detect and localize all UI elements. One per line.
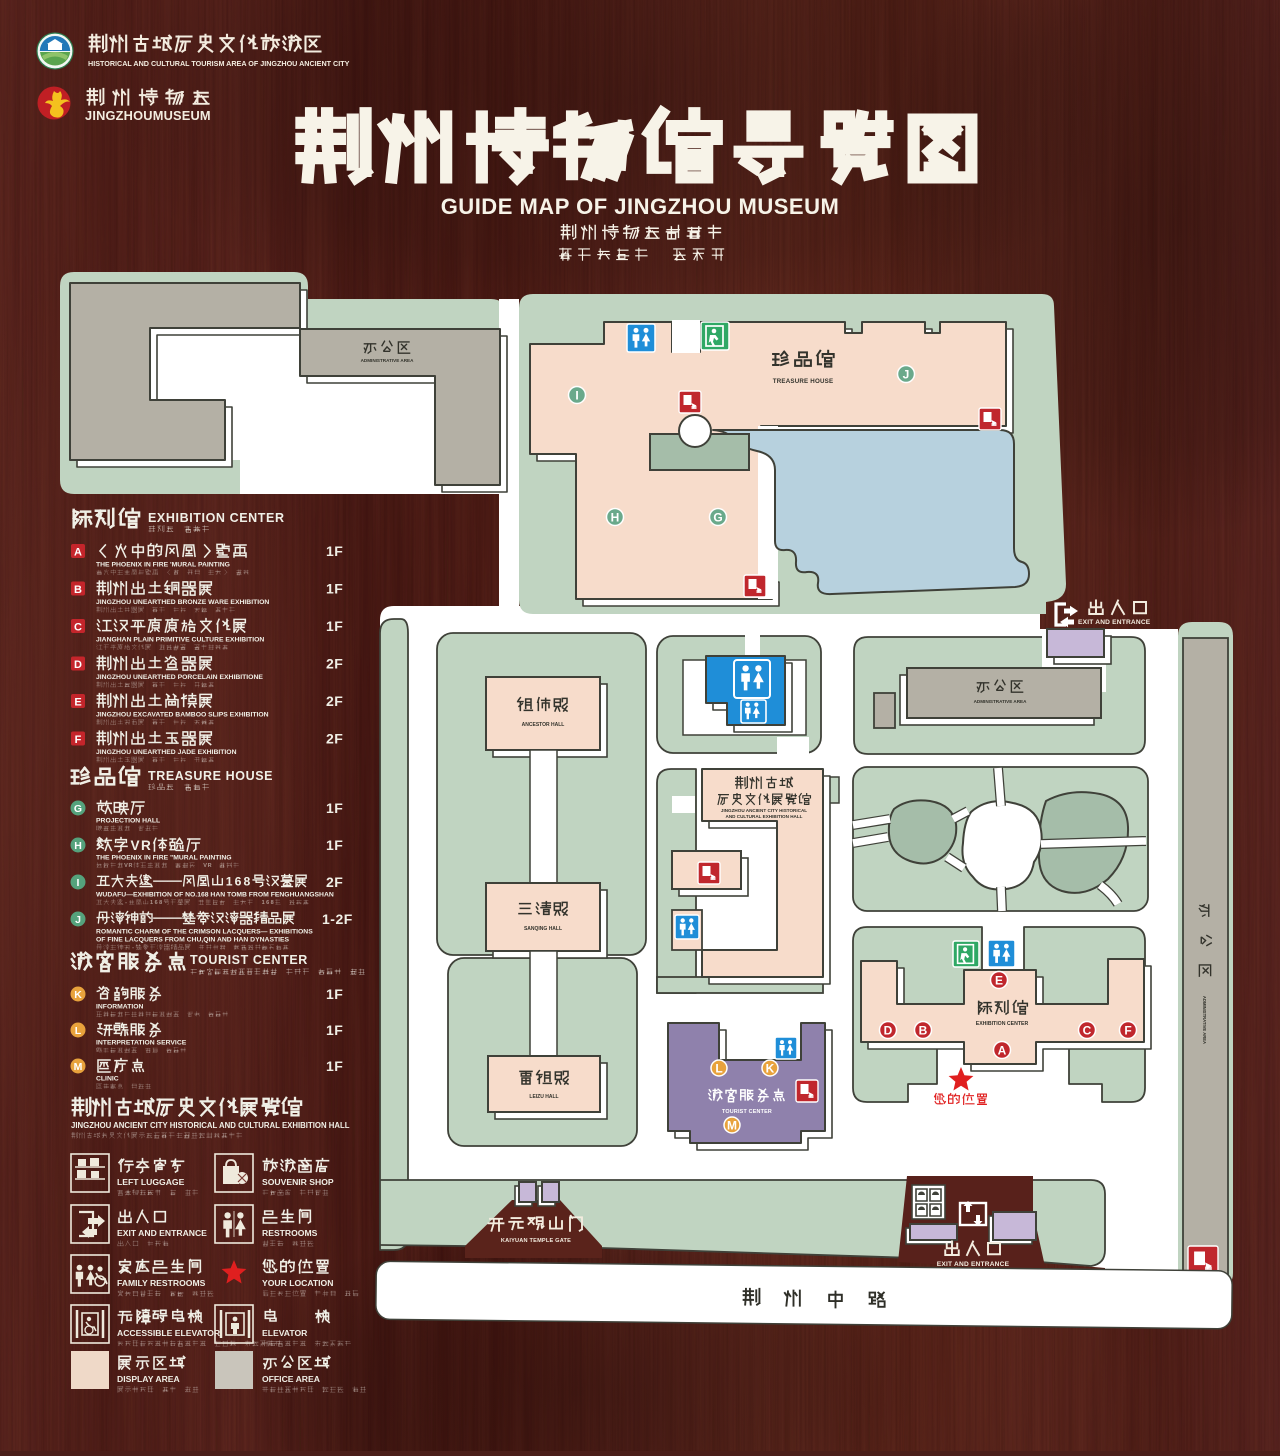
svg-text:ADMINISTRATIVE AREA: ADMINISTRATIVE AREA [974, 699, 1028, 704]
svg-text:B: B [919, 1023, 928, 1037]
svg-text:8: 8 [271, 900, 274, 906]
svg-text:TREASURE HOUSE: TREASURE HOUSE [148, 769, 273, 783]
svg-text:ROMANTIC CHARM OF THE CRIMSON: ROMANTIC CHARM OF THE CRIMSON LACQUERS— … [96, 929, 313, 936]
svg-text:JINGZHOUMUSEUM: JINGZHOUMUSEUM [85, 108, 211, 123]
svg-text:EXHIBITION CENTER: EXHIBITION CENTER [976, 1021, 1029, 1027]
svg-text:RESTROOMS: RESTROOMS [262, 1228, 318, 1238]
svg-text:R: R [129, 863, 133, 869]
svg-text:H: H [611, 510, 620, 524]
svg-text:SANQING HALL: SANQING HALL [524, 926, 562, 932]
svg-text:YOUR LOCATION: YOUR LOCATION [262, 1278, 333, 1288]
svg-text:-: - [132, 945, 134, 951]
svg-text:CLINIC: CLINIC [96, 1076, 119, 1083]
svg-text:DISPLAY AREA: DISPLAY AREA [117, 1374, 180, 1384]
svg-text:1: 1 [150, 900, 153, 906]
svg-text:1F: 1F [326, 1058, 343, 1074]
svg-text:OF FINE LACQUERS FROM CHU,QIN: OF FINE LACQUERS FROM CHU,QIN AND HAN DY… [96, 937, 290, 944]
svg-text:-: - [125, 900, 127, 906]
svg-text:J: J [903, 367, 910, 381]
svg-text:C: C [1083, 1023, 1092, 1037]
svg-text:ADMINISTRATIVE AREA: ADMINISTRATIVE AREA [361, 358, 415, 363]
svg-text:THE PHOENIX IN FIRE 'MURAL PAI: THE PHOENIX IN FIRE 'MURAL PAINTING [96, 562, 230, 569]
svg-text:J: J [75, 914, 81, 926]
svg-text:6: 6 [235, 874, 242, 888]
svg-text:6: 6 [266, 900, 269, 906]
svg-text:I: I [77, 877, 80, 889]
svg-text:JINGZHOU ANCIENT CITY HISTORIC: JINGZHOU ANCIENT CITY HISTORICAL AND CUL… [71, 1121, 350, 1130]
svg-text:2F: 2F [326, 874, 343, 890]
svg-text:EXHIBITION CENTER: EXHIBITION CENTER [148, 511, 285, 525]
svg-text:ADMINISTRATIVE AREA: ADMINISTRATIVE AREA [1202, 996, 1207, 1044]
svg-text:1F: 1F [326, 581, 343, 597]
svg-text:JINGZHOU ANCIENT CITY HISTORIC: JINGZHOU ANCIENT CITY HISTORICAL [721, 808, 807, 813]
svg-text:JINGZHOU UNEARTHED BRONZE WARE: JINGZHOU UNEARTHED BRONZE WARE EXHIBITIO… [96, 599, 269, 606]
svg-text:JINGZHOU UNEARTHED PORCELAIN E: JINGZHOU UNEARTHED PORCELAIN EXHIBITIONE [96, 674, 263, 681]
svg-text:TREASURE HOUSE: TREASURE HOUSE [773, 378, 834, 385]
svg-text:WUDAFU—EXHIBITION OF NO.168 HA: WUDAFU—EXHIBITION OF NO.168 HAN TOMB FRO… [96, 892, 334, 899]
svg-text:2F: 2F [326, 731, 343, 747]
svg-text:1-2F: 1-2F [322, 911, 353, 927]
svg-text:FAMILY RESTROOMS: FAMILY RESTROOMS [117, 1278, 206, 1288]
svg-text:F: F [75, 734, 82, 746]
svg-text:2F: 2F [326, 693, 343, 709]
svg-text:M: M [727, 1118, 737, 1132]
svg-text:ELEVATOR: ELEVATOR [262, 1328, 308, 1338]
svg-text:I: I [575, 388, 578, 402]
svg-text:SOUVENIR SHOP: SOUVENIR SHOP [262, 1177, 334, 1187]
svg-text:INTERPRETATION SERVICE: INTERPRETATION SERVICE [96, 1040, 187, 1047]
svg-text:JIANGHAN PLAIN PRIMITIVE CULTU: JIANGHAN PLAIN PRIMITIVE CULTURE EXHIBIT… [96, 637, 264, 644]
svg-text:M: M [74, 1061, 83, 1073]
svg-text:R: R [141, 838, 151, 853]
svg-text:1F: 1F [326, 1022, 343, 1038]
svg-text:K: K [74, 989, 82, 1001]
svg-text:AND CULTURAL EXHIBITION HALL: AND CULTURAL EXHIBITION HALL [726, 814, 803, 819]
svg-text:THE PHOENIX IN FIRE "MURAL PAI: THE PHOENIX IN FIRE "MURAL PAINTING [96, 855, 232, 862]
svg-text:TOURIST CENTER: TOURIST CENTER [190, 953, 308, 967]
svg-text:6: 6 [155, 900, 158, 906]
svg-text:A: A [998, 1043, 1007, 1057]
svg-text:ACCESSIBLE ELEVATOR: ACCESSIBLE ELEVATOR [117, 1328, 221, 1338]
svg-text:LEIZU HALL: LEIZU HALL [529, 1094, 558, 1100]
svg-text:G: G [713, 510, 722, 524]
svg-text:V: V [130, 838, 139, 853]
svg-text:R: R [208, 863, 212, 869]
svg-text:JINGZHOU UNEARTHED JADE EXHIBI: JINGZHOU UNEARTHED JADE EXHIBITION [96, 749, 237, 756]
svg-text:LEFT LUGGAGE: LEFT LUGGAGE [117, 1177, 185, 1187]
svg-text:H: H [74, 840, 82, 852]
svg-text:KAIYUAN TEMPLE GATE: KAIYUAN TEMPLE GATE [501, 1238, 571, 1244]
svg-text:1F: 1F [326, 800, 343, 816]
svg-text:JINGZHOU EXCAVATED BAMBOO SLIP: JINGZHOU EXCAVATED BAMBOO SLIPS EXHIBITI… [96, 712, 269, 719]
svg-text:1: 1 [226, 874, 233, 888]
svg-text:EXIT AND ENTRANCE: EXIT AND ENTRANCE [117, 1228, 207, 1238]
svg-text:8: 8 [244, 874, 251, 888]
svg-text:E: E [74, 697, 81, 709]
svg-text:D: D [884, 1023, 893, 1037]
svg-text:ANCESTOR HALL: ANCESTOR HALL [522, 722, 565, 728]
svg-text:8: 8 [159, 900, 162, 906]
svg-text:1F: 1F [326, 837, 343, 853]
svg-text:1F: 1F [326, 618, 343, 634]
svg-text:D: D [74, 659, 82, 671]
svg-text:TOURIST CENTER: TOURIST CENTER [722, 1109, 772, 1115]
svg-text:HISTORICAL AND CULTURAL TOURIS: HISTORICAL AND CULTURAL TOURISM AREA OF … [88, 59, 350, 68]
svg-text:OFFICE AREA: OFFICE AREA [262, 1374, 320, 1384]
svg-text:1: 1 [262, 900, 265, 906]
svg-text:GUIDE MAP OF JINGZHOU MUSEUM: GUIDE MAP OF JINGZHOU MUSEUM [441, 194, 840, 219]
svg-text:F: F [1124, 1023, 1131, 1037]
svg-text:2F: 2F [326, 656, 343, 672]
svg-text:L: L [715, 1061, 722, 1075]
svg-text:1F: 1F [326, 543, 343, 559]
svg-text:B: B [74, 584, 82, 596]
svg-text:1F: 1F [326, 986, 343, 1002]
svg-text:EXIT AND ENTRANCE: EXIT AND ENTRANCE [1078, 619, 1151, 626]
svg-text:E: E [995, 973, 1003, 987]
svg-text:PROJECTION HALL: PROJECTION HALL [96, 818, 160, 825]
svg-text:L: L [75, 1025, 82, 1037]
svg-text:A: A [74, 547, 82, 559]
svg-text:C: C [74, 622, 82, 634]
svg-text:G: G [74, 803, 82, 815]
svg-text:K: K [766, 1061, 775, 1075]
svg-text:INFORMATION: INFORMATION [96, 1004, 144, 1011]
